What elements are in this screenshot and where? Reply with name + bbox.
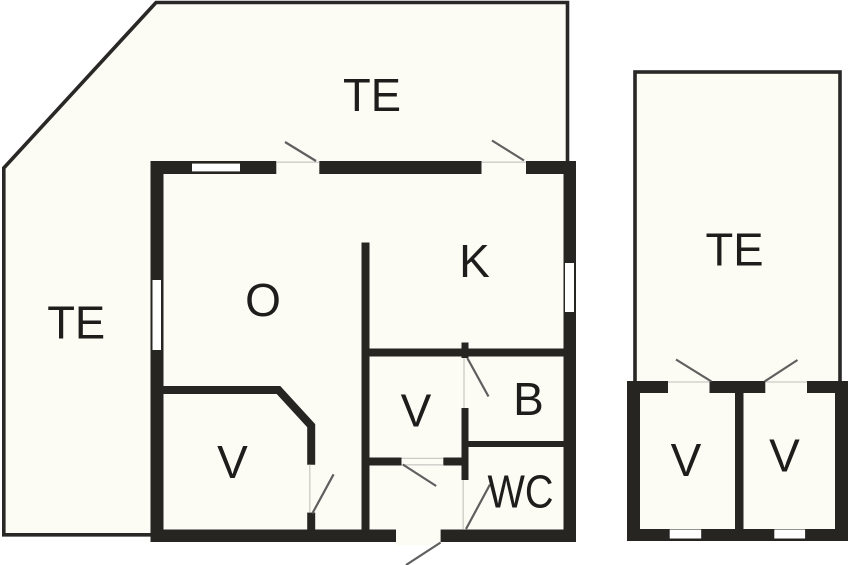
svg-text:V: V bbox=[769, 429, 800, 481]
svg-text:TE: TE bbox=[47, 297, 105, 349]
svg-text:O: O bbox=[245, 274, 281, 326]
svg-text:WC: WC bbox=[488, 466, 554, 518]
svg-text:B: B bbox=[513, 373, 544, 425]
svg-text:V: V bbox=[217, 436, 248, 488]
svg-text:V: V bbox=[671, 434, 702, 486]
svg-text:TE: TE bbox=[343, 69, 401, 121]
svg-text:V: V bbox=[401, 385, 432, 437]
svg-text:K: K bbox=[459, 235, 490, 287]
svg-text:TE: TE bbox=[706, 224, 764, 276]
